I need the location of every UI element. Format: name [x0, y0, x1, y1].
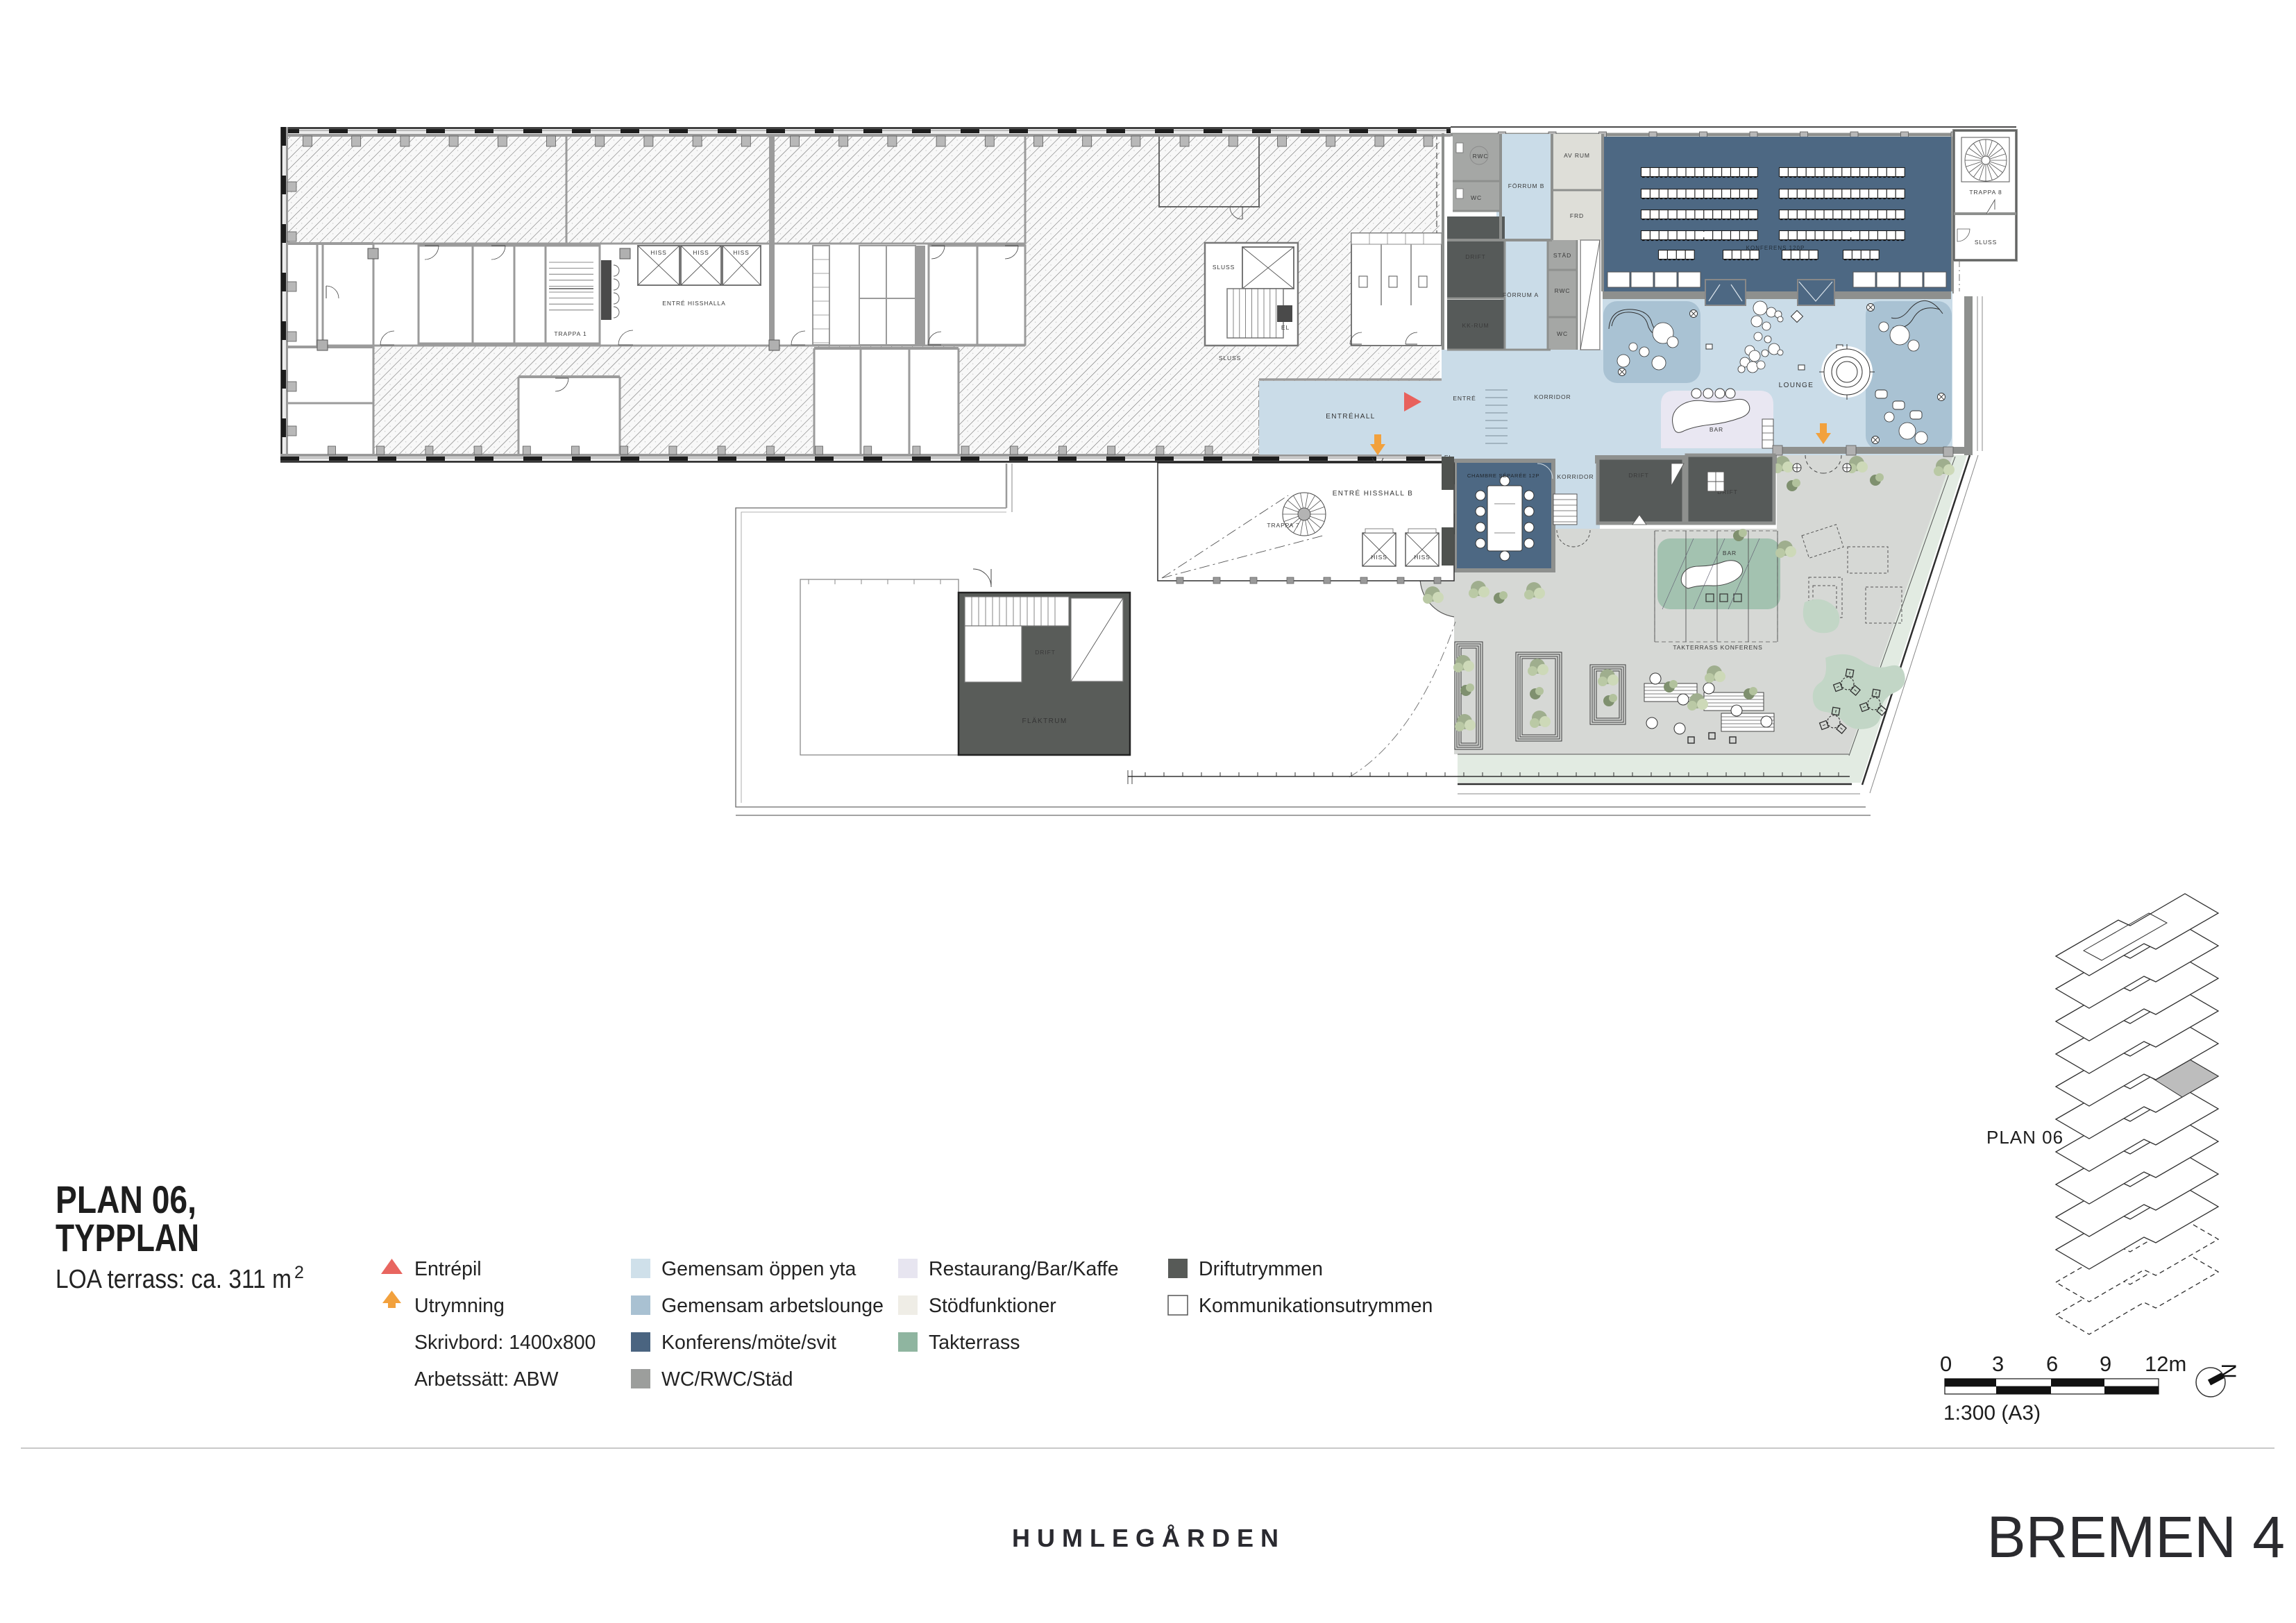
svg-text:WC/RWC/Städ: WC/RWC/Städ — [661, 1368, 793, 1391]
svg-text:TRAPPA 1: TRAPPA 1 — [554, 330, 586, 337]
svg-text:ENTRÉHALL: ENTRÉHALL — [1326, 411, 1376, 420]
svg-text:LOA terrass: ca. 311 m: LOA terrass: ca. 311 m — [56, 1265, 292, 1294]
svg-text:Kommunikationsutrymmen: Kommunikationsutrymmen — [1199, 1295, 1433, 1317]
svg-text:TRAPPA 7: TRAPPA 7 — [1267, 522, 1299, 529]
svg-text:FÖRRUM A: FÖRRUM A — [1503, 291, 1539, 298]
svg-text:AV RUM: AV RUM — [1564, 152, 1590, 159]
svg-text:RWC: RWC — [1555, 287, 1571, 294]
svg-text:3: 3 — [1992, 1352, 2004, 1376]
svg-text:SLUSS: SLUSS — [1213, 264, 1235, 271]
svg-text:WC: WC — [1471, 194, 1482, 201]
svg-text:Utrymning: Utrymning — [414, 1295, 505, 1317]
svg-text:PLAN 06,: PLAN 06, — [56, 1178, 196, 1221]
svg-text:HISS: HISS — [650, 249, 666, 256]
svg-text:ENTRÉ HISSHALLA: ENTRÉ HISSHALLA — [662, 300, 725, 307]
svg-text:1:300 (A3): 1:300 (A3) — [1943, 1402, 2041, 1425]
svg-text:Arbetssätt: ABW: Arbetssätt: ABW — [414, 1368, 559, 1391]
svg-text:Gemensam öppen yta: Gemensam öppen yta — [661, 1258, 856, 1280]
svg-text:Entrépil: Entrépil — [414, 1258, 482, 1280]
svg-text:9: 9 — [2100, 1352, 2111, 1376]
svg-text:Takterrass: Takterrass — [929, 1332, 1020, 1354]
svg-text:0: 0 — [1940, 1352, 1952, 1376]
svg-text:HUMLEGÅRDEN: HUMLEGÅRDEN — [1012, 1524, 1285, 1552]
svg-text:HISS: HISS — [1414, 554, 1430, 561]
svg-text:Restaurang/Bar/Kaffe: Restaurang/Bar/Kaffe — [929, 1258, 1119, 1280]
svg-text:RWC: RWC — [1473, 153, 1489, 160]
svg-text:HISS: HISS — [1371, 554, 1387, 561]
svg-text:WC: WC — [1557, 330, 1568, 337]
svg-text:BAR: BAR — [1710, 426, 1723, 433]
svg-text:2: 2 — [294, 1263, 304, 1282]
svg-text:LOUNGE: LOUNGE — [1779, 382, 1814, 389]
svg-text:ENTRÉ: ENTRÉ — [1453, 395, 1476, 402]
svg-text:CHAMBRE SÉPARÉE 12P: CHAMBRE SÉPARÉE 12P — [1467, 473, 1539, 479]
svg-text:KORRIDOR: KORRIDOR — [1557, 473, 1594, 480]
svg-text:SLUSS: SLUSS — [1975, 239, 1997, 246]
svg-text:HISS: HISS — [733, 249, 749, 256]
svg-text:STÄD: STÄD — [1553, 252, 1571, 259]
svg-text:BAR: BAR — [1723, 550, 1737, 556]
svg-text:N: N — [2217, 1363, 2240, 1379]
svg-text:Stödfunktioner: Stödfunktioner — [929, 1295, 1056, 1317]
svg-text:FRD: FRD — [1570, 212, 1584, 219]
svg-text:KONFERENS 120P: KONFERENS 120P — [1746, 245, 1805, 251]
svg-text:DRIFT: DRIFT — [1628, 472, 1649, 479]
svg-text:FLÄKTRUM: FLÄKTRUM — [1022, 717, 1067, 725]
svg-text:Gemensam arbetslounge: Gemensam arbetslounge — [661, 1295, 884, 1317]
svg-text:SLUSS: SLUSS — [1219, 355, 1241, 362]
svg-text:PLAN 06: PLAN 06 — [1986, 1127, 2063, 1148]
svg-text:Skrivbord: 1400x800: Skrivbord: 1400x800 — [414, 1332, 596, 1354]
svg-text:TRAPPA 8: TRAPPA 8 — [1969, 189, 2002, 196]
svg-text:ENTRÉ HISSHALL B: ENTRÉ HISSHALL B — [1333, 488, 1414, 498]
svg-text:FÖRRUM B: FÖRRUM B — [1508, 182, 1545, 189]
svg-text:TAKTERRASS KONFERENS: TAKTERRASS KONFERENS — [1673, 644, 1762, 651]
svg-text:Konferens/möte/svit: Konferens/möte/svit — [661, 1332, 836, 1354]
svg-text:12m: 12m — [2145, 1352, 2186, 1376]
svg-text:BREMEN 4: BREMEN 4 — [1987, 1504, 2285, 1570]
svg-text:DRIFT: DRIFT — [1465, 253, 1486, 260]
svg-text:KK-RUM: KK-RUM — [1462, 322, 1489, 329]
svg-text:Driftutrymmen: Driftutrymmen — [1199, 1258, 1323, 1280]
svg-text:EL: EL — [1281, 324, 1290, 331]
svg-text:TYPPLAN: TYPPLAN — [56, 1216, 199, 1259]
svg-text:KORRIDOR: KORRIDOR — [1534, 393, 1571, 400]
svg-text:6: 6 — [2046, 1352, 2058, 1376]
svg-text:DRIFT: DRIFT — [1035, 649, 1056, 656]
svg-text:HISS: HISS — [693, 249, 709, 256]
